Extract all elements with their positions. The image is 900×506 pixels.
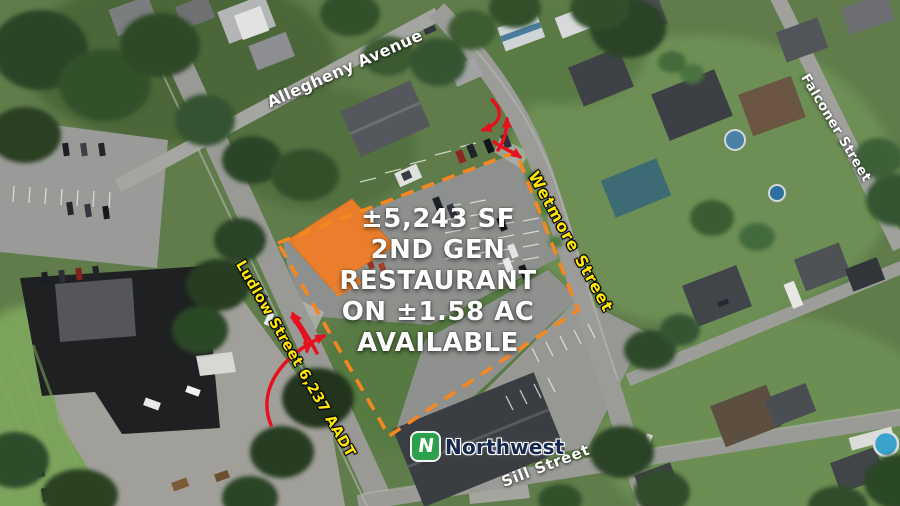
satellite-imagery [0,0,900,506]
aerial-map-stage: ±5,243 SF 2ND GEN RESTAURANT ON ±1.58 AC… [0,0,900,506]
